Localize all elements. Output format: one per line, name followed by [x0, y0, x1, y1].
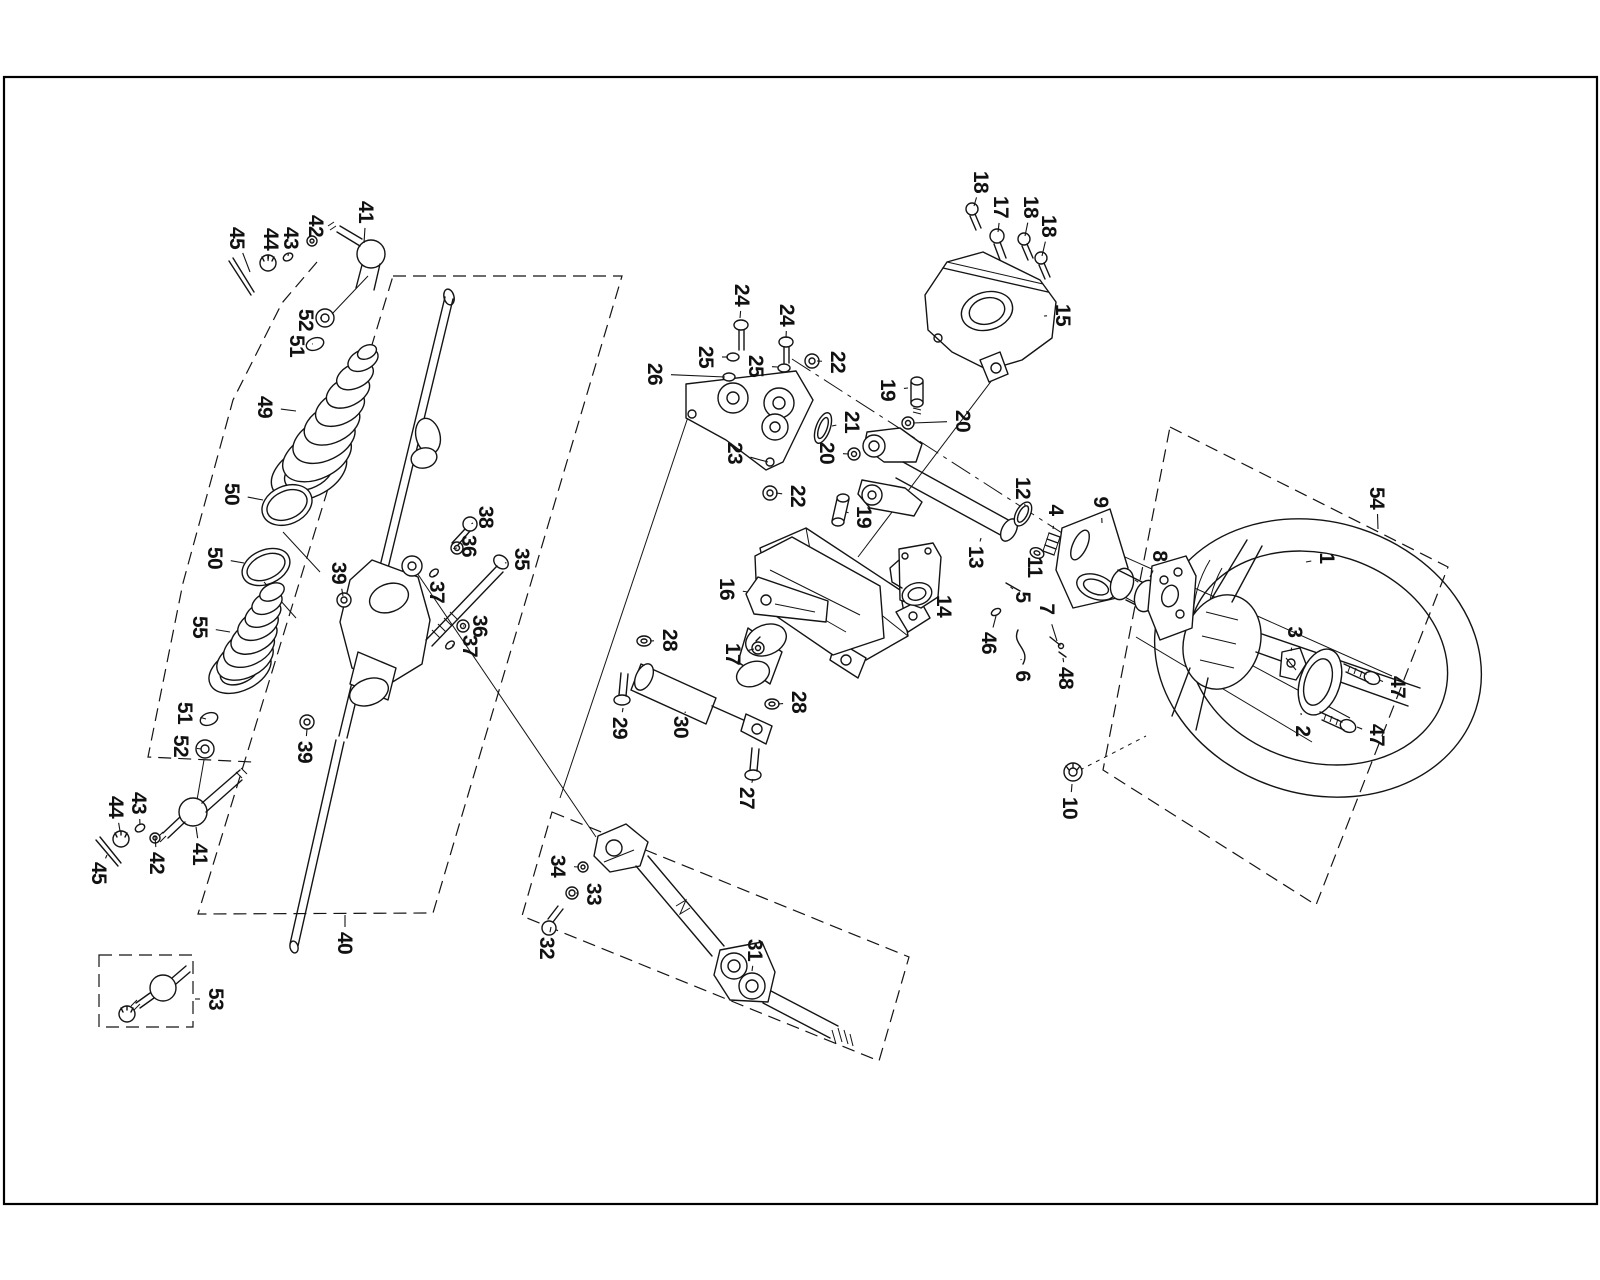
- nut-20b: [848, 448, 860, 460]
- callout-41: 41: [188, 827, 211, 866]
- lock-nut-52a: [316, 309, 334, 327]
- callout-53: 53: [195, 988, 227, 1010]
- mount-nut-39b: [300, 715, 314, 729]
- part-number-label: 37: [458, 635, 481, 657]
- callout-18: 18: [969, 171, 992, 206]
- callout-37: 37: [425, 575, 448, 603]
- callout-37: 37: [452, 635, 481, 657]
- callout-27: 27: [735, 779, 758, 809]
- callout-leader: [471, 523, 473, 524]
- callout-22: 22: [776, 485, 809, 507]
- part-number-label: 47: [1365, 724, 1388, 746]
- callout-43: 43: [279, 227, 302, 256]
- part-number-label: 26: [643, 363, 666, 385]
- washer-25a: [727, 353, 739, 361]
- pinion-yoke: [402, 556, 422, 576]
- part-number-label: 39: [293, 741, 316, 763]
- part-number-label: 6: [1011, 670, 1034, 681]
- part-number-label: 42: [145, 852, 168, 874]
- pin-19a: [911, 377, 923, 414]
- callout-24: 24: [730, 284, 753, 318]
- part-number-label: 44: [259, 228, 282, 251]
- clip-43a: [282, 251, 294, 262]
- callout-24: 24: [775, 304, 798, 338]
- callout-leader: [119, 823, 120, 831]
- callout-40: 40: [333, 915, 356, 954]
- callout-28: 28: [650, 629, 681, 652]
- part-number-label: 20: [815, 442, 838, 464]
- callout-47: 47: [1357, 724, 1388, 746]
- callout-43: 43: [127, 792, 150, 825]
- callout-34: 34: [546, 855, 579, 878]
- pin-7: [1050, 637, 1060, 645]
- part-number-label: 36: [457, 535, 480, 557]
- callout-21: 21: [832, 411, 863, 434]
- callout-leader: [197, 748, 201, 749]
- bolt-32: [542, 921, 556, 935]
- part-number-label: 35: [510, 548, 533, 571]
- callout-leader: [243, 253, 250, 272]
- part-number-label: 41: [188, 843, 211, 866]
- part-number-label: 10: [1058, 797, 1081, 819]
- part-number-label: 1: [1315, 552, 1338, 564]
- part-number-label: 37: [425, 581, 448, 603]
- part-number-label: 20: [951, 410, 974, 432]
- callout-28: 28: [778, 691, 810, 714]
- bolt-24a: [734, 320, 748, 330]
- callout-25: 25: [694, 346, 728, 369]
- tie-rod-end-box-53: [99, 955, 193, 1027]
- callout-leader: [993, 616, 996, 628]
- callout-50: 50: [220, 483, 263, 505]
- callout-leader: [231, 561, 244, 563]
- part-number-label: 19: [852, 506, 875, 528]
- ring-51b: [198, 710, 219, 727]
- part-number-label: 22: [826, 351, 849, 373]
- callout-leader: [306, 729, 307, 736]
- part-number-label: 43: [279, 227, 302, 249]
- part-number-label: 17: [721, 643, 744, 665]
- bellows-boot-49: [262, 342, 382, 512]
- part-number-label: 40: [333, 932, 356, 954]
- intermediate-shaft-assembly: [542, 824, 853, 1046]
- callout-leader: [913, 422, 947, 423]
- part-number-label: 22: [786, 485, 809, 507]
- callout-12: 12: [1011, 477, 1034, 506]
- nut-to-box-link: [1080, 736, 1146, 770]
- part-number-label: 49: [253, 396, 276, 418]
- part-number-label: 27: [735, 787, 758, 809]
- bellows-boot-55: [201, 579, 287, 703]
- callout-leader: [752, 966, 753, 971]
- upper-column-holder: [925, 203, 1056, 382]
- part-number-label: 41: [354, 201, 377, 224]
- callout-leader: [1306, 561, 1311, 562]
- steering-exploded-diagram-page: 4544434241525149505055515239393836373536…: [0, 0, 1600, 1280]
- callout-29: 29: [608, 708, 631, 739]
- callout-5: 5: [1011, 587, 1034, 603]
- callout-leader: [1063, 658, 1064, 662]
- part-number-label: 24: [775, 304, 798, 327]
- callout-22: 22: [817, 351, 849, 373]
- callout-39: 39: [327, 562, 350, 596]
- spring-4: [1043, 533, 1060, 555]
- bolt-29: [614, 695, 630, 705]
- callout-19: 19: [846, 506, 875, 528]
- part-number-label: 13: [964, 546, 987, 568]
- callout-leader: [196, 827, 198, 838]
- callout-16: 16: [715, 578, 748, 600]
- part-number-label: 21: [840, 411, 863, 434]
- part-number-label: 8: [1148, 550, 1171, 562]
- washer-28b: [765, 699, 779, 709]
- pin-48: [1059, 652, 1066, 657]
- part-number-label: 18: [969, 171, 992, 194]
- part-number-label: 32: [535, 937, 558, 959]
- washer-34: [578, 862, 588, 872]
- part-number-label: 52: [294, 309, 317, 331]
- upper-boot-kit: [256, 276, 382, 572]
- callout-46: 46: [977, 616, 1000, 654]
- steering-wheel-box-54: [1103, 427, 1448, 905]
- callout-leader: [453, 548, 457, 549]
- part-number-label: 5: [1011, 591, 1034, 603]
- callout-35: 35: [505, 548, 533, 571]
- pin-37a: [428, 567, 440, 578]
- pin-19b: [832, 494, 849, 526]
- bolt-27: [745, 770, 761, 780]
- part-number-label: 50: [203, 547, 226, 569]
- part-number-label: 31: [743, 939, 766, 962]
- callout-18: 18: [1037, 215, 1060, 256]
- callout-38: 38: [471, 506, 497, 529]
- part-number-label: 12: [1011, 477, 1034, 499]
- part-number-label: 43: [127, 792, 150, 814]
- part-number-label: 2: [1291, 725, 1314, 736]
- part-number-label: 42: [304, 215, 327, 237]
- washer-28a: [637, 636, 651, 646]
- washer-25b: [778, 364, 790, 372]
- part-number-label: 39: [327, 562, 350, 584]
- callout-14: 14: [929, 595, 955, 618]
- callout-49: 49: [253, 396, 296, 418]
- callout-leader: [740, 311, 741, 318]
- callout-30: 30: [669, 712, 692, 739]
- part-number-label: 25: [744, 355, 767, 378]
- callout-10: 10: [1058, 784, 1081, 819]
- part-number-label: 51: [173, 702, 196, 725]
- callout-54: 54: [1365, 487, 1388, 529]
- callout-leader: [281, 409, 296, 411]
- callout-leader: [846, 512, 849, 513]
- callout-33: 33: [576, 883, 605, 905]
- part-number-label: 23: [723, 442, 746, 464]
- part-number-label: 25: [694, 346, 717, 369]
- rack-and-pinion-assembly: [289, 288, 456, 954]
- callout-leader: [1071, 784, 1072, 792]
- callout-leader: [980, 538, 981, 542]
- part-number-label: 11: [1023, 556, 1046, 578]
- callout-leader: [622, 708, 623, 712]
- callout-leader: [248, 497, 263, 500]
- callout-45: 45: [87, 855, 110, 885]
- cotter-pin-45a: [229, 258, 254, 295]
- part-number-label: 16: [715, 578, 738, 600]
- wheel-nut-10: [1064, 763, 1082, 781]
- part-number-label: 17: [989, 196, 1012, 218]
- part-number-label: 28: [787, 691, 810, 714]
- callout-leader: [1291, 648, 1292, 651]
- bolt-17b: [752, 642, 764, 654]
- callout-leader: [671, 375, 725, 377]
- pin-37b: [444, 639, 456, 650]
- callout-leader: [1357, 727, 1362, 729]
- callout-36: 36: [453, 535, 480, 557]
- callout-leader: [105, 855, 107, 858]
- callout-6: 6: [1011, 659, 1034, 682]
- callout-51: 51: [285, 335, 313, 358]
- bolt-24b: [779, 337, 793, 347]
- part-number-label: 30: [669, 716, 692, 738]
- callout-1: 1: [1306, 552, 1338, 564]
- callout-17: 17: [989, 196, 1012, 232]
- callout-13: 13: [964, 538, 987, 568]
- part-number-label: 9: [1089, 496, 1112, 507]
- callout-leader: [832, 425, 836, 426]
- callout-39: 39: [293, 729, 316, 763]
- screw-47a: [1344, 664, 1382, 687]
- spare-tie-rod-end-53: [119, 966, 190, 1022]
- bushing-21: [811, 411, 835, 446]
- part-number-label: 28: [658, 629, 681, 652]
- part-number-label: 52: [169, 735, 192, 757]
- callout-19: 19: [876, 379, 908, 401]
- exploded-parts-diagram: 4544434241525149505055515239393836373536…: [0, 0, 1600, 1280]
- part-number-label: 46: [977, 632, 1000, 654]
- nut-22a: [805, 354, 819, 368]
- callout-20: 20: [815, 442, 849, 464]
- callout-20: 20: [913, 410, 974, 432]
- part-number-label: 47: [1386, 676, 1409, 698]
- part-number-label: 50: [220, 483, 243, 505]
- callout-leader: [216, 630, 230, 632]
- callout-2: 2: [1291, 713, 1314, 737]
- callout-leader: [743, 591, 748, 592]
- part-number-label: 53: [204, 988, 227, 1010]
- nut-22b: [763, 486, 777, 500]
- part-number-label: 29: [608, 717, 631, 739]
- callout-52: 52: [294, 309, 322, 331]
- part-number-label: 3: [1283, 626, 1306, 637]
- part-number-label: 51: [285, 335, 308, 358]
- callout-44: 44: [104, 796, 127, 831]
- part-number-label: 45: [225, 227, 248, 250]
- callout-55: 55: [188, 616, 230, 639]
- part-number-label: 24: [730, 284, 753, 307]
- part-number-label: 4: [1044, 504, 1067, 516]
- part-number-label: 19: [876, 379, 899, 401]
- part-number-label: 44: [104, 796, 127, 819]
- screw-47b: [1320, 712, 1358, 735]
- wire-clip-6: [1016, 630, 1024, 664]
- mount-nut-39a: [337, 593, 351, 607]
- part-number-label: 38: [474, 506, 497, 529]
- part-number-label: 15: [1051, 304, 1074, 327]
- part-number-label: 54: [1365, 487, 1388, 510]
- part-number-label: 34: [546, 855, 569, 878]
- callout-4: 4: [1044, 504, 1067, 529]
- column-tube-and-fork: [858, 428, 1035, 544]
- part-number-label: 36: [468, 615, 491, 637]
- callout-7: 7: [1035, 603, 1058, 641]
- key-5: [1006, 583, 1020, 591]
- pin-46: [990, 607, 1002, 617]
- part-number-label: 33: [582, 883, 605, 905]
- part-number-label: 48: [1054, 667, 1077, 690]
- part-number-label: 18: [1037, 215, 1060, 238]
- part-number-label: 45: [87, 862, 110, 885]
- nut-20a: [902, 417, 914, 429]
- wheel-spoke-top: [1212, 540, 1262, 602]
- callout-leader: [1053, 526, 1054, 529]
- callout-47: 47: [1379, 676, 1409, 698]
- steering-wheel-group: [1064, 477, 1518, 838]
- part-number-label: 14: [932, 595, 955, 618]
- part-number-label: 7: [1035, 603, 1058, 614]
- callout-50: 50: [203, 547, 244, 569]
- callout-48: 48: [1054, 658, 1077, 690]
- part-number-label: 55: [188, 616, 211, 639]
